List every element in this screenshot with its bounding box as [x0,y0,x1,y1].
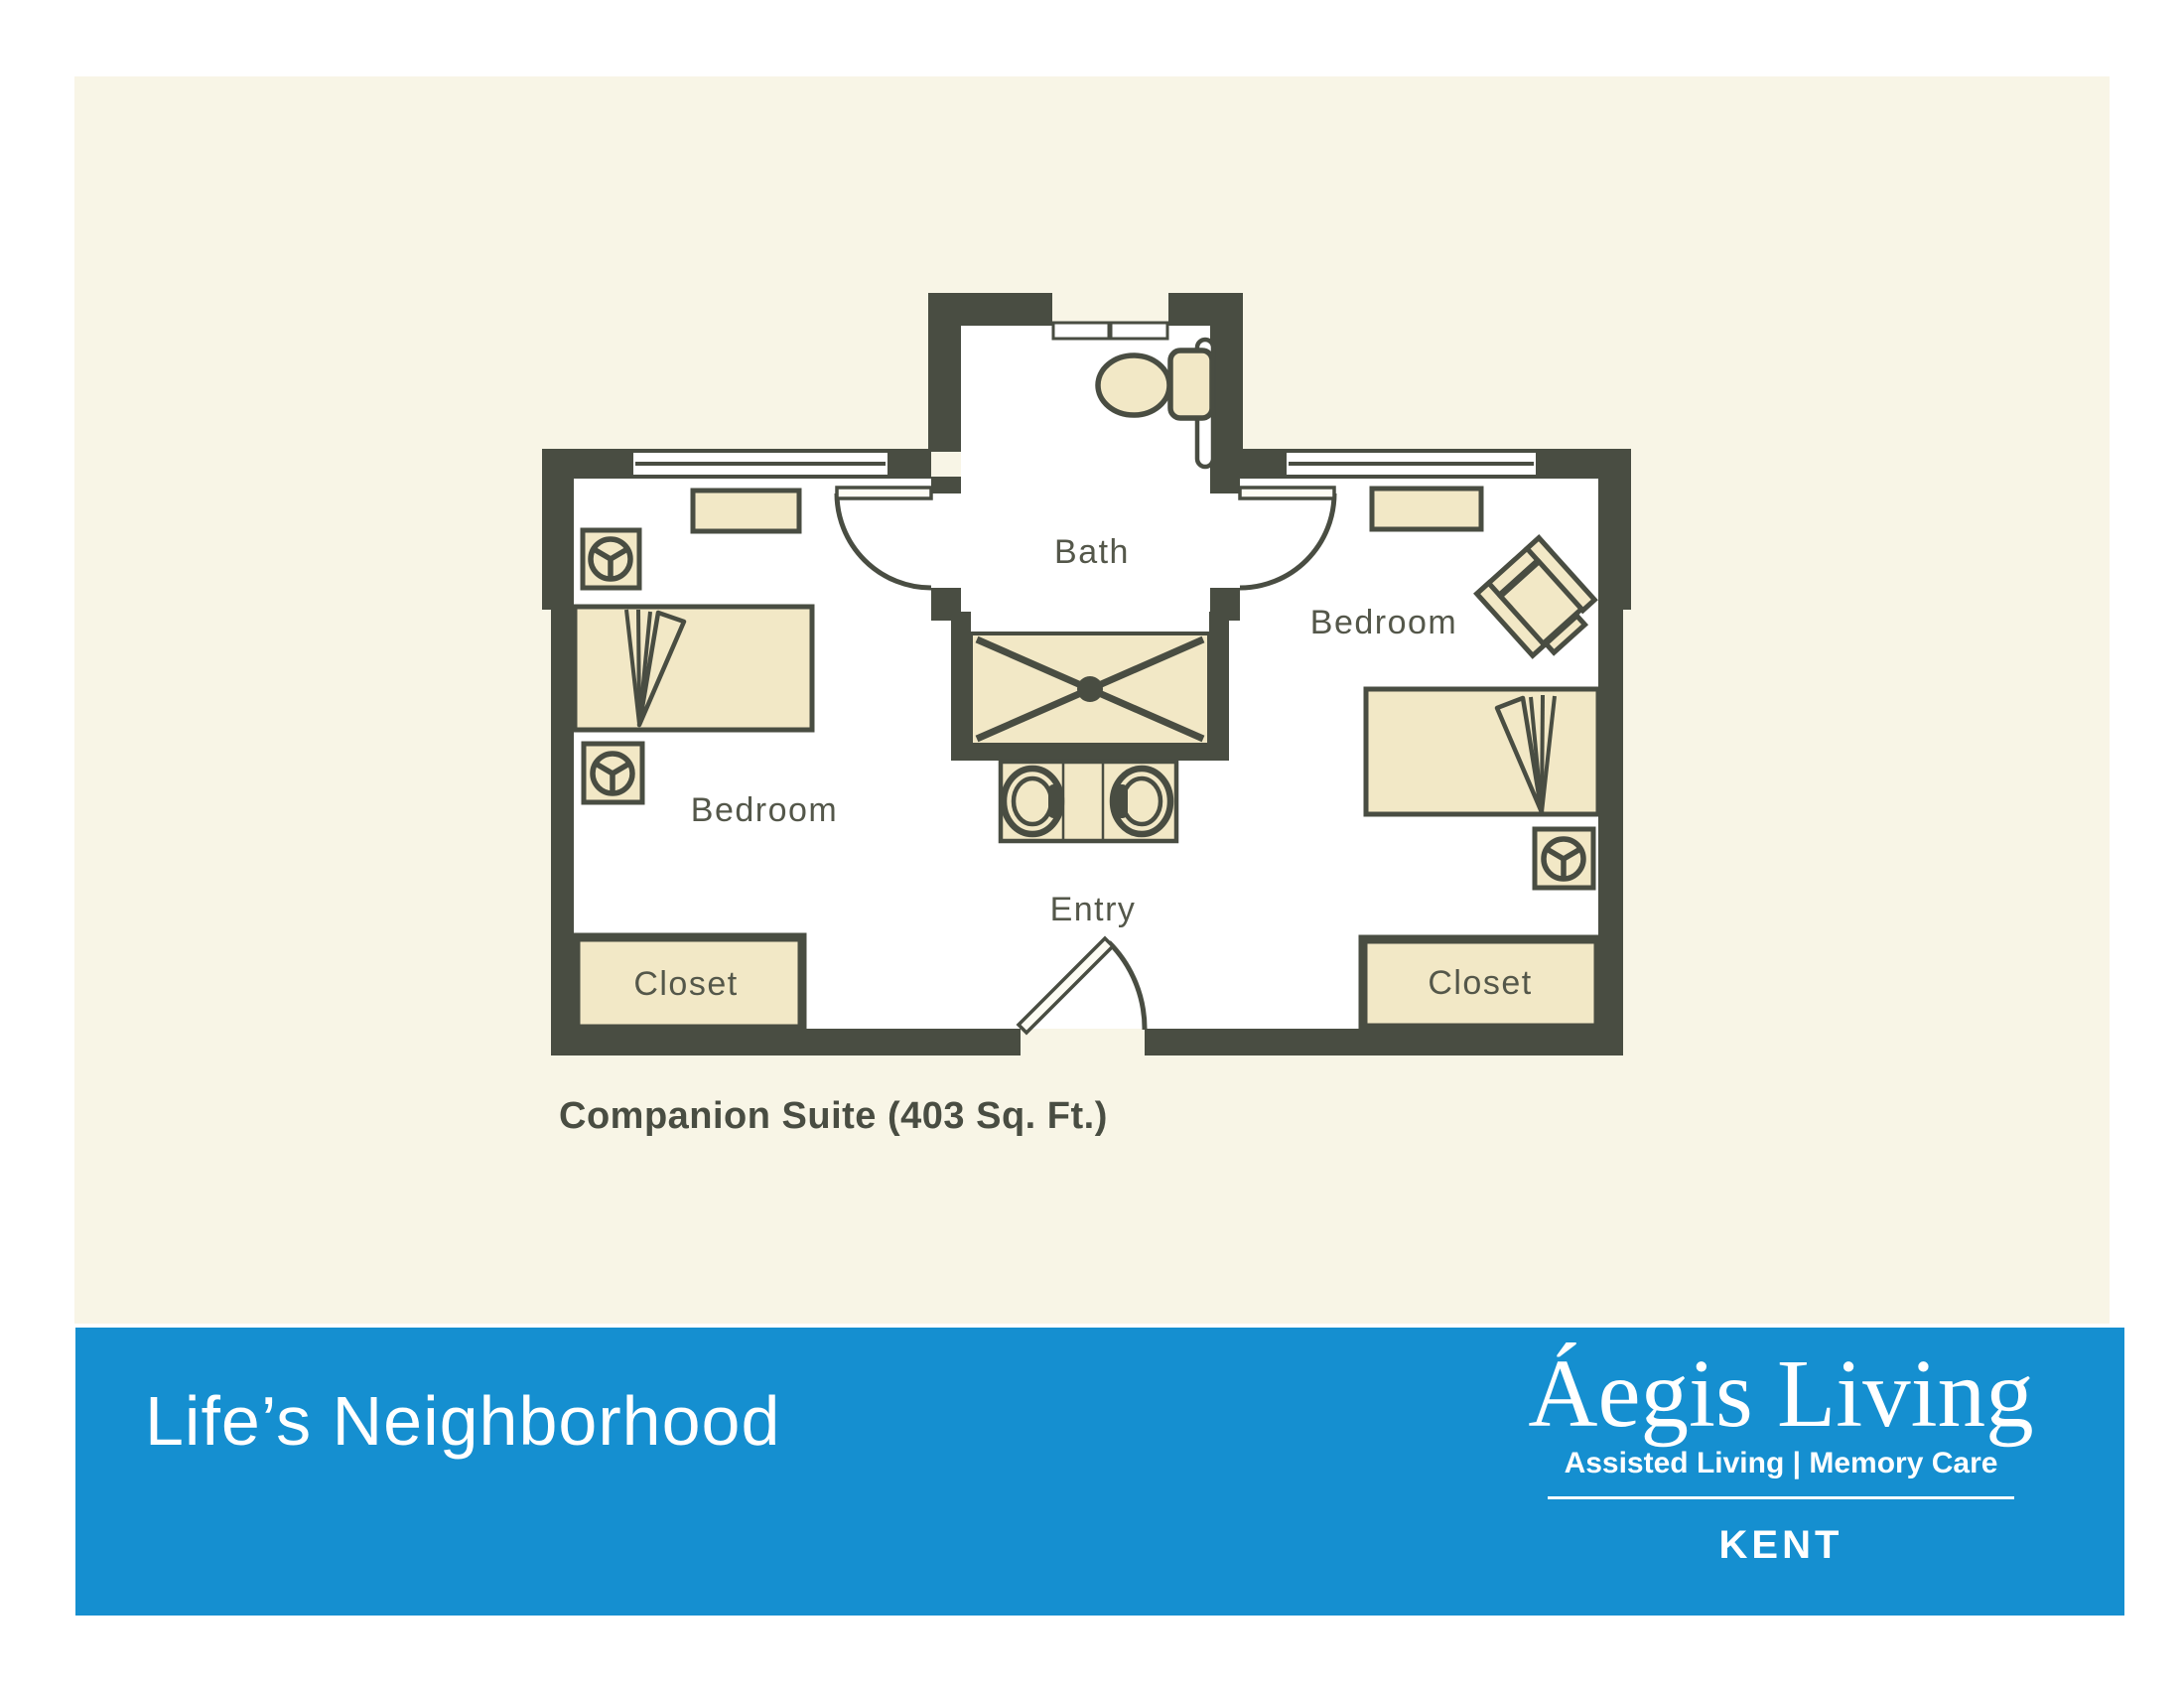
brand-divider [1548,1496,2014,1499]
toilet-icon [1098,355,1169,415]
bath-window-icon [1111,323,1167,339]
faucet-icon [1048,784,1060,818]
door-leaf [837,488,931,498]
bedroom-left-label: Bedroom [691,791,838,829]
brand-location: KENT [1493,1523,2069,1568]
brand-subtitle: Assisted Living | Memory Care [1493,1447,2069,1480]
entry-label: Entry [1050,891,1137,928]
bottom-wall-right [1145,1029,1623,1055]
bath-window-icon [1053,323,1109,339]
plan-caption: Companion Suite (403 Sq. Ft.) [559,1095,1108,1137]
bath-label: Bath [1054,533,1130,571]
bath-right-jamb-upper [1210,477,1240,493]
toilet-tank [1170,351,1212,418]
bed-icon [1366,689,1598,814]
brand-logo: Áegis Living Assisted Living | Memory Ca… [1493,1343,2069,1568]
left-wing-wall-a [542,449,630,479]
shower-left-wall [951,612,971,761]
shower-bottom-wall [951,745,1229,761]
double-sink-vanity-icon [1001,762,1176,841]
closet-left-label: Closet [633,965,738,1003]
shower-drain [1077,676,1103,702]
footer-band: Life’s Neighborhood Áegis Living Assiste… [75,1328,2124,1616]
closet-right-label: Closet [1428,964,1532,1002]
shower-right-wall [1209,612,1229,761]
brand-name: Áegis Living [1493,1343,2069,1445]
door-leaf [1240,488,1334,498]
right-wing-wall-a [1210,449,1284,479]
right-wing-wall-b [1539,449,1631,479]
dresser-icon [693,491,799,531]
dresser-icon [1372,489,1481,529]
faucet-icon [1116,784,1128,818]
tagline: Life’s Neighborhood [145,1381,780,1461]
bath-left-jamb-upper [931,477,961,493]
bed-icon [575,607,812,730]
left-wing-wall-b [890,449,931,479]
bath-left-wall [928,293,961,452]
bedroom-right-label: Bedroom [1310,604,1457,641]
left-wall-lower [551,610,574,1055]
